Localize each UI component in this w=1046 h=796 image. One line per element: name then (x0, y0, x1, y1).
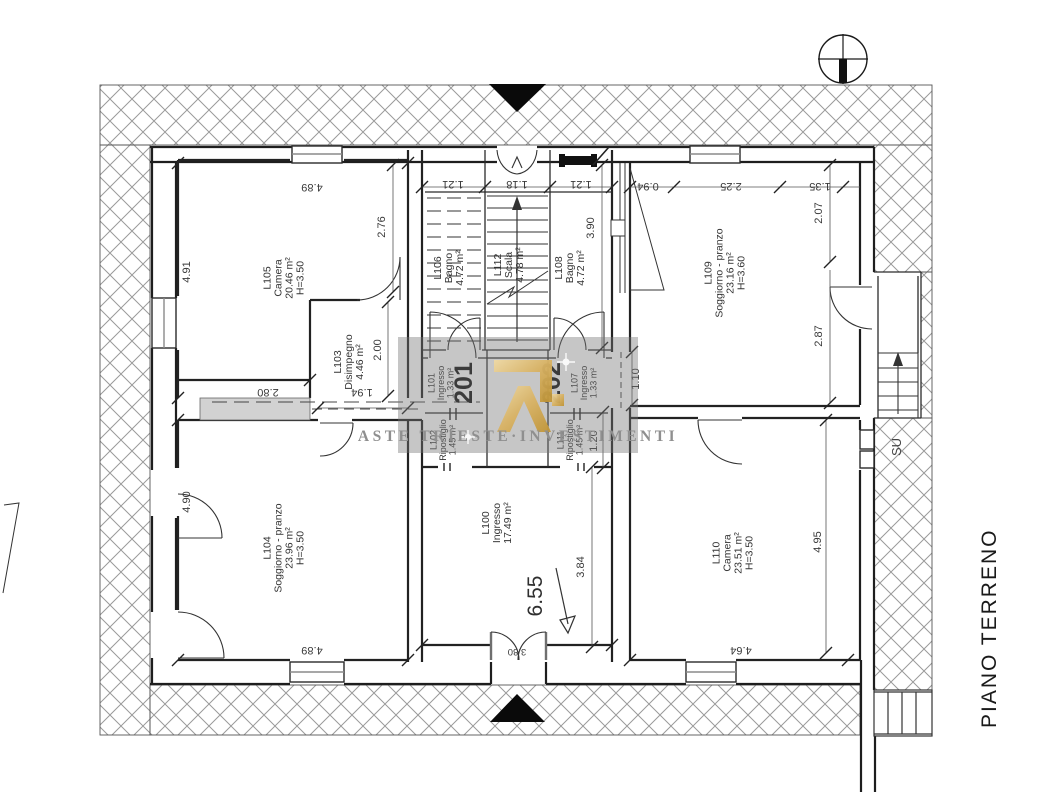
dim-l109-left: 3.90 (585, 217, 597, 238)
entrance-arrow (556, 568, 575, 633)
dim-l105-bottom: 2.80 (257, 386, 278, 398)
dim-l103-right: 2.00 (372, 339, 384, 360)
room-label-l112: L112Scala4.78 m² (492, 247, 526, 283)
room-label-l110: L110Camera23.51 m²H=3.50 (711, 532, 756, 574)
north-symbol (818, 34, 868, 84)
floor-title: PIANO TERRENO (978, 529, 1001, 728)
door-l105-l103 (357, 257, 400, 300)
dim-stair-right: 1.21 (570, 178, 591, 190)
stairs-up-label: SU (889, 438, 904, 456)
dim-l105-right: 2.76 (376, 216, 388, 237)
watermark-caption: ASTE TRIESTE·INVESTIMENTI (358, 428, 678, 445)
dim-landing-door: 2.87 (813, 325, 825, 346)
dim-l110-right: 4.95 (812, 531, 824, 552)
site-boundary-line (3, 503, 19, 593)
exterior-landing-stairs (878, 352, 918, 418)
dim-l100-door: 3.80 (508, 646, 527, 657)
exterior-steps-bottom-right (874, 690, 932, 736)
dim-l109-top-b: 2.25 (720, 180, 741, 192)
floor-plan-page: L105Camera20.46 m²H=3.50 L103Disimpegno4… (0, 0, 1046, 796)
window-bottom-l110 (686, 662, 736, 682)
window-top-l105 (292, 146, 342, 163)
dim-stair-mid: 1.18 (506, 178, 527, 190)
dim-l109-right: 2.07 (813, 202, 825, 223)
room-label-l108: L108Bagno4.72 m² (553, 250, 587, 286)
door-l104-corridor (320, 423, 353, 456)
dim-l103-bottom: 1.94 (351, 386, 372, 398)
dim-l104-left: 4.90 (181, 491, 193, 512)
dim-l100-width: 6.55 (524, 576, 547, 617)
room-label-l105: L105Camera20.46 m²H=3.50 (262, 257, 307, 299)
room-label-l104: L104Soggiorno - pranzo23.96 m²H=3.50 (262, 503, 307, 592)
room-label-l100: L100Ingresso17.49 m² (480, 502, 514, 544)
dim-stair-left: 1.21 (442, 178, 463, 190)
floor-plan-drawing: L105Camera20.46 m²H=3.50 L103Disimpegno4… (0, 0, 1046, 796)
dim-l105-left: 4.91 (181, 261, 193, 282)
door-top-entry-arcs (497, 150, 537, 174)
watermark: ASTE TRIESTE·INVESTIMENTI (358, 337, 678, 453)
dim-l104-bottom: 4.89 (301, 644, 322, 656)
dim-l109-top-a: 0.94 (637, 180, 658, 192)
door-l109-landing (830, 287, 872, 329)
door-l104-left-lower (178, 612, 224, 658)
window-left-l105 (152, 298, 176, 348)
window-top-l109 (690, 146, 740, 163)
thick-wall-band (200, 398, 310, 420)
door-l110 (698, 420, 742, 464)
window-right-l110 (860, 430, 874, 468)
dim-l109-top-c: 1.35 (809, 180, 830, 192)
room-label-l106: L106Bagno4.72 m² (432, 250, 466, 286)
dim-l110-bottom: 4.64 (730, 644, 751, 656)
dim-l105-top: 4.89 (301, 181, 322, 193)
window-bottom-l104 (290, 662, 344, 682)
entry-door-leaf-black (559, 147, 609, 167)
room-label-l103: L103Disimpegno4.46 m² (332, 334, 366, 390)
dim-l100-right: 3.84 (575, 556, 587, 577)
room-label-l109: L109Soggiorno - pranzo23.16 m²H=3.60 (703, 228, 748, 317)
